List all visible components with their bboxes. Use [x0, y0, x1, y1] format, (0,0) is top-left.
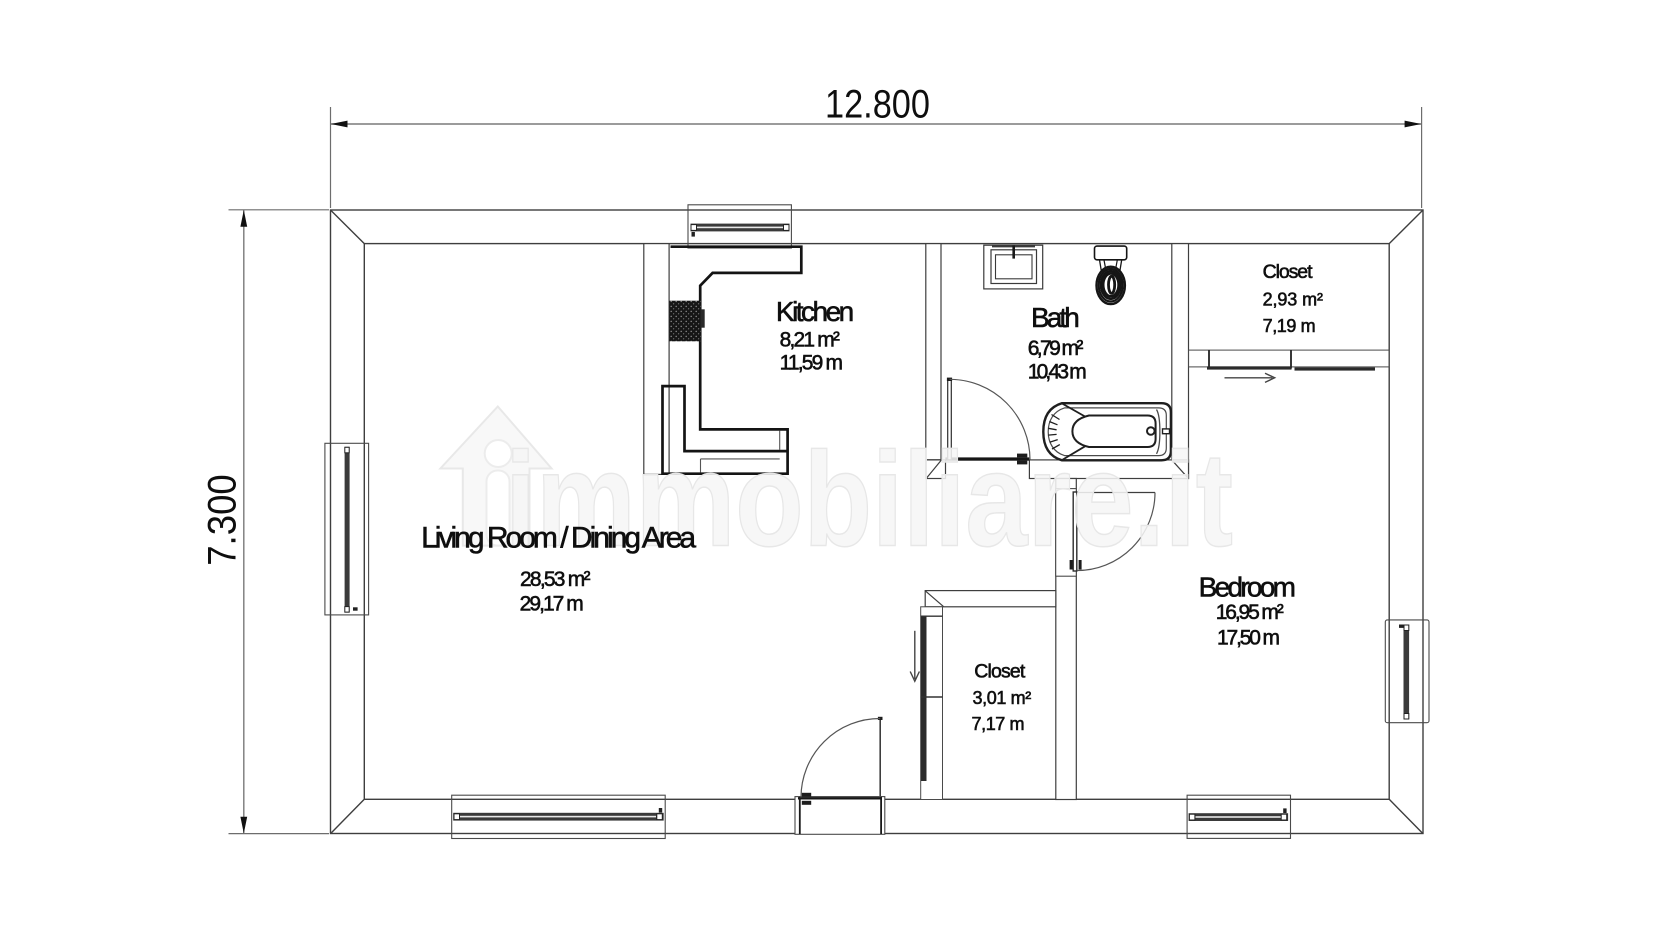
svg-text:28,53 m²: 28,53 m² — [520, 568, 591, 591]
svg-text:7,17 m: 7,17 m — [972, 714, 1025, 734]
svg-text:Bath: Bath — [1031, 302, 1080, 333]
svg-text:7.300: 7.300 — [201, 474, 245, 566]
svg-text:3,01 m²: 3,01 m² — [973, 688, 1032, 708]
svg-text:Closet: Closet — [1263, 261, 1313, 283]
svg-text:10,43 m: 10,43 m — [1028, 361, 1087, 384]
svg-text:12.800: 12.800 — [825, 83, 930, 127]
svg-text:29,17 m: 29,17 m — [520, 593, 584, 616]
svg-text:11,59 m: 11,59 m — [780, 352, 843, 375]
svg-text:7,19 m: 7,19 m — [1263, 316, 1316, 336]
svg-text:Living Room / Dining Area: Living Room / Dining Area — [421, 522, 696, 555]
svg-text:2,93 m²: 2,93 m² — [1263, 290, 1323, 310]
svg-text:6,79 m²: 6,79 m² — [1028, 337, 1084, 360]
svg-text:8,21 m²: 8,21 m² — [780, 329, 840, 352]
svg-text:17,50 m: 17,50 m — [1217, 627, 1280, 650]
svg-text:16,95 m²: 16,95 m² — [1216, 601, 1284, 624]
svg-text:Kitchen: Kitchen — [776, 296, 854, 327]
svg-text:Closet: Closet — [974, 661, 1026, 683]
svg-text:Bedroom: Bedroom — [1199, 572, 1296, 603]
